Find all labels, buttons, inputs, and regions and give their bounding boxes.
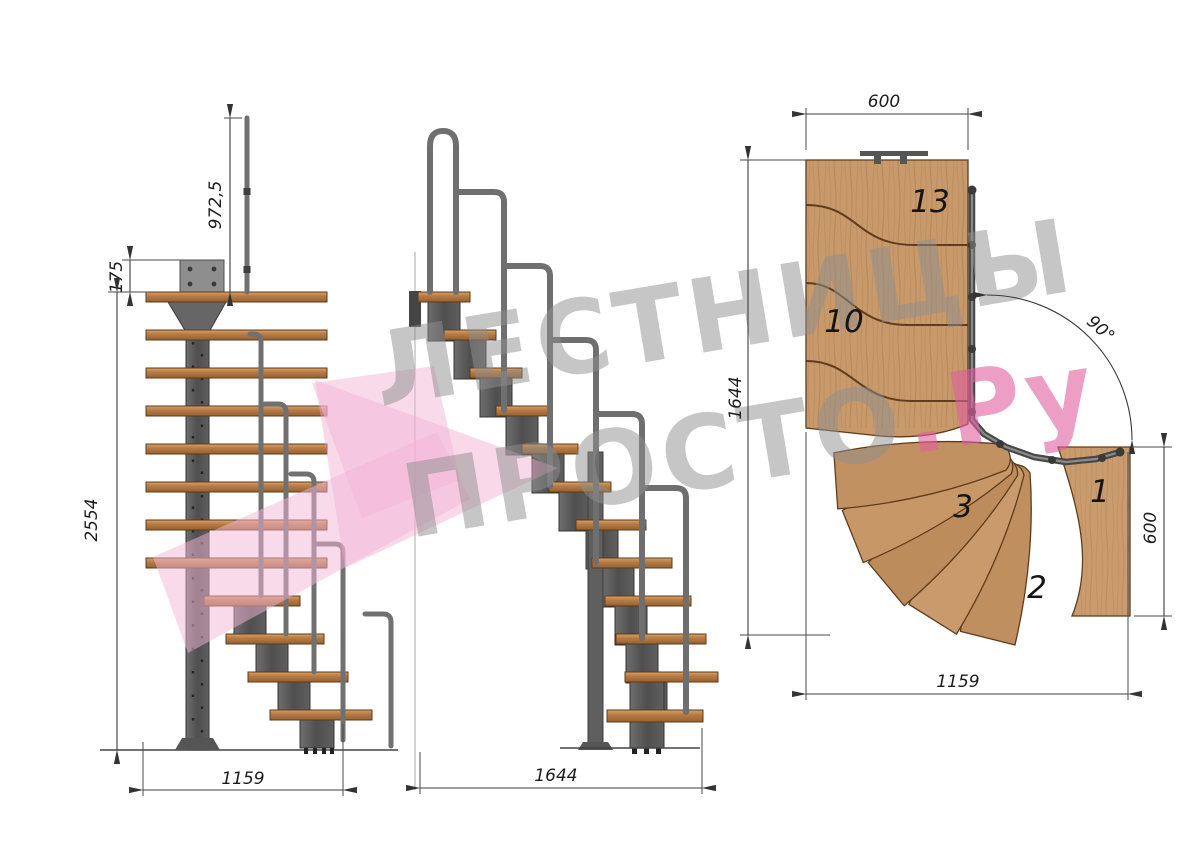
step-number-13: 13 xyxy=(910,184,949,220)
step-number-2: 2 xyxy=(1027,570,1047,606)
dim-rail-height: 972,5 xyxy=(206,181,226,230)
dim-plan-right-depth: 600 xyxy=(1141,512,1161,544)
staircase-drawing: ЛЕСТНИЦЫ ПРОСТО.Ру 972,5 175 2554 1159 1… xyxy=(0,0,1200,849)
step-number-3: 3 xyxy=(953,489,973,525)
dim-side-length: 1644 xyxy=(534,766,577,786)
dim-plan-left-length: 1644 xyxy=(726,376,746,419)
dim-plan-bottom-length: 1159 xyxy=(936,672,979,692)
step-number-1: 1 xyxy=(1090,474,1110,510)
dim-total-height: 2554 xyxy=(82,498,102,541)
step-number-10: 10 xyxy=(824,304,863,340)
mounting-plate xyxy=(180,260,224,292)
dim-plate-offset: 175 xyxy=(107,261,127,293)
dim-plan-top-width: 600 xyxy=(868,92,900,112)
dim-front-width: 1159 xyxy=(221,769,264,789)
